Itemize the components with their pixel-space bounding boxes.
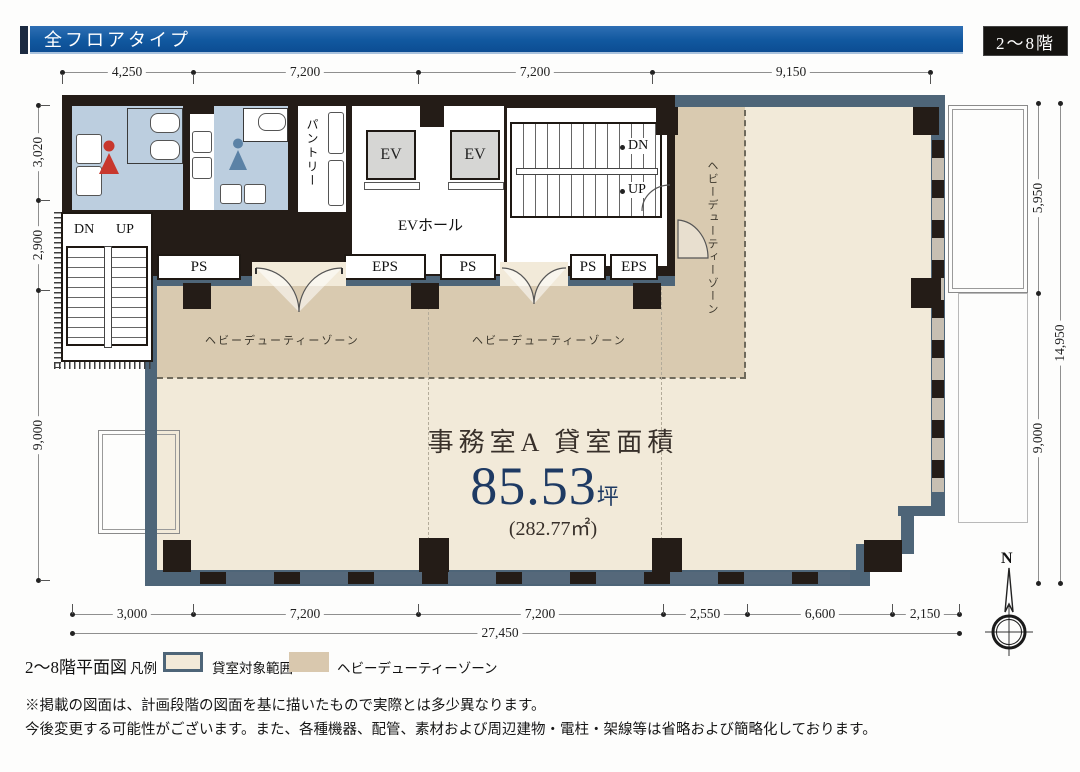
- dim-bottom-6: 2,150: [906, 606, 944, 622]
- women-icon: [98, 140, 120, 176]
- page-title: 全フロアタイプ: [44, 26, 191, 52]
- toilet-fixture: [150, 113, 180, 133]
- heavy-duty-zone-label-1: ヘビーデューティーゾーン: [205, 332, 360, 348]
- dim-dot: [1058, 101, 1063, 106]
- left-stair-divider: [104, 246, 112, 348]
- plan-title: 2〜8階平面図: [25, 653, 127, 678]
- office-area-unit: 坪: [597, 484, 620, 509]
- toilet-fixture: [258, 113, 286, 131]
- left-stair-up-label: UP: [116, 222, 134, 238]
- dim-left-3: 9,000: [30, 416, 46, 454]
- dim-tick: [652, 74, 653, 84]
- exterior-outline-right: [958, 293, 1028, 523]
- stair-up-dot: [620, 189, 625, 194]
- shaft-ps-1: PS: [157, 254, 241, 280]
- floor-badge: 2〜8階: [983, 26, 1068, 56]
- dim-right-2: 9,000: [1030, 419, 1046, 457]
- dim-dot: [1036, 291, 1041, 296]
- dim-top-1: 4,250: [108, 64, 146, 80]
- wall-top-right: [666, 95, 945, 107]
- legend-item-heavy-duty: ヘビーデューティーゾーン: [337, 657, 498, 677]
- dim-dot: [1036, 101, 1041, 106]
- legend-item-rental: 貸室対象範囲: [212, 657, 293, 677]
- dim-top-4: 9,150: [772, 64, 810, 80]
- sink-fixture: [192, 131, 212, 153]
- dim-bottom-1: 3,000: [113, 606, 151, 622]
- dim-bottom-3: 7,200: [521, 606, 559, 622]
- legend-swatch-heavy-duty: [289, 652, 329, 672]
- stair-landing: [516, 168, 658, 175]
- column: [419, 538, 449, 572]
- dim-left-2: 2,900: [30, 226, 46, 264]
- office-area-value: 85.53坪: [470, 455, 620, 517]
- ev-hall-label: EVホール: [398, 214, 463, 235]
- shaft-ps-2: PS: [440, 254, 496, 280]
- column: [163, 540, 191, 572]
- dim-dot: [1058, 581, 1063, 586]
- dim-bottom-4: 2,550: [686, 606, 724, 622]
- dim-tick: [747, 604, 748, 614]
- dim-dot: [70, 631, 75, 636]
- note-line-1: ※掲載の図面は、計画段階の図面を基に描いたもので実際とは多少異なります。: [25, 694, 546, 715]
- north-compass-icon: [983, 566, 1035, 658]
- dim-tick: [663, 604, 664, 614]
- urinal-fixture: [220, 184, 242, 204]
- dim-tick: [72, 604, 73, 614]
- header-accent-chip: [20, 26, 28, 54]
- dim-top-3: 7,200: [516, 64, 554, 80]
- hatch-left: [54, 212, 61, 368]
- elevator-sill: [448, 182, 504, 190]
- dim-tick: [418, 74, 419, 84]
- dim-dot: [957, 631, 962, 636]
- pantry-counter: [328, 112, 344, 154]
- dim-tick: [193, 74, 194, 84]
- zone-boundary-dash-horizontal: [157, 377, 746, 379]
- column: [911, 278, 941, 308]
- pantry-label: パントリー: [304, 118, 321, 213]
- dim-tick: [40, 580, 50, 581]
- dim-bottom-2: 7,200: [286, 606, 324, 622]
- dim-tick: [892, 604, 893, 614]
- column: [183, 283, 211, 309]
- legend-swatch-rental: [163, 652, 203, 672]
- page-title-bar: 全フロアタイプ: [30, 26, 963, 54]
- stair-dn-dot: [620, 145, 625, 150]
- column: [864, 540, 902, 572]
- dim-tick: [418, 604, 419, 614]
- elevator-2: EV: [450, 130, 500, 180]
- column: [656, 107, 678, 135]
- elevator-sill: [364, 182, 420, 190]
- shaft-eps-2: EPS: [610, 254, 658, 280]
- dim-top-2: 7,200: [286, 64, 324, 80]
- office-title: 事務室A 貸室面積: [428, 422, 679, 459]
- column: [913, 107, 939, 135]
- dim-tick: [62, 74, 63, 84]
- column: [652, 538, 682, 572]
- zone-boundary-dash-vertical: [744, 110, 746, 378]
- exterior-outline-left: [98, 430, 180, 534]
- dim-tick: [193, 604, 194, 614]
- single-door-strip: [676, 218, 710, 260]
- dim-right-total: 14,950: [1052, 320, 1068, 365]
- note-line-2: 今後変更する可能性がございます。また、各種機器、配管、素材および周辺建物・電柱・…: [25, 718, 877, 739]
- heavy-duty-zone-label-2: ヘビーデューティーゾーン: [472, 332, 627, 348]
- hatch-bottom: [54, 362, 154, 369]
- men-icon: [228, 138, 248, 172]
- window-band-right: [932, 140, 944, 492]
- elevator-1: EV: [366, 130, 416, 180]
- column: [411, 283, 439, 309]
- dim-line-right-inner: [1038, 103, 1039, 583]
- dim-tick: [40, 200, 50, 201]
- dim-tick: [959, 604, 960, 614]
- urinal-fixture: [244, 184, 266, 204]
- dim-bottom-5: 6,600: [801, 606, 839, 622]
- dim-line-left: [38, 105, 39, 580]
- dim-dot: [1036, 581, 1041, 586]
- dim-right-1: 5,950: [1030, 179, 1046, 217]
- dim-tick: [40, 290, 50, 291]
- dim-tick: [40, 105, 50, 106]
- double-door-1: [254, 266, 344, 314]
- legend-label: 凡例: [130, 657, 157, 677]
- office-area-m2: (282.77㎡): [509, 512, 597, 541]
- shaft-ps-3: PS: [570, 254, 606, 280]
- floor-plan-page: 全フロアタイプ 2〜8階 ヘビーデューティーゾーン ヘビーデューティーゾーン ヘ…: [0, 0, 1080, 772]
- balcony-outline: [948, 105, 1028, 293]
- toilet-fixture: [150, 140, 180, 160]
- pantry-counter: [328, 160, 344, 206]
- sink-fixture: [192, 157, 212, 179]
- left-stair-dn-label: DN: [74, 222, 94, 238]
- double-door-2: [500, 266, 568, 306]
- window-band-bottom: [200, 572, 850, 584]
- column: [633, 283, 661, 309]
- core-pillar: [420, 95, 444, 127]
- single-door-stair: [640, 183, 672, 213]
- dim-left-1: 3,020: [30, 133, 46, 171]
- dim-tick: [930, 74, 931, 84]
- shaft-eps-1: EPS: [344, 254, 426, 280]
- dim-bottom-total: 27,450: [477, 625, 522, 641]
- stair-dn-label: DN: [626, 138, 650, 154]
